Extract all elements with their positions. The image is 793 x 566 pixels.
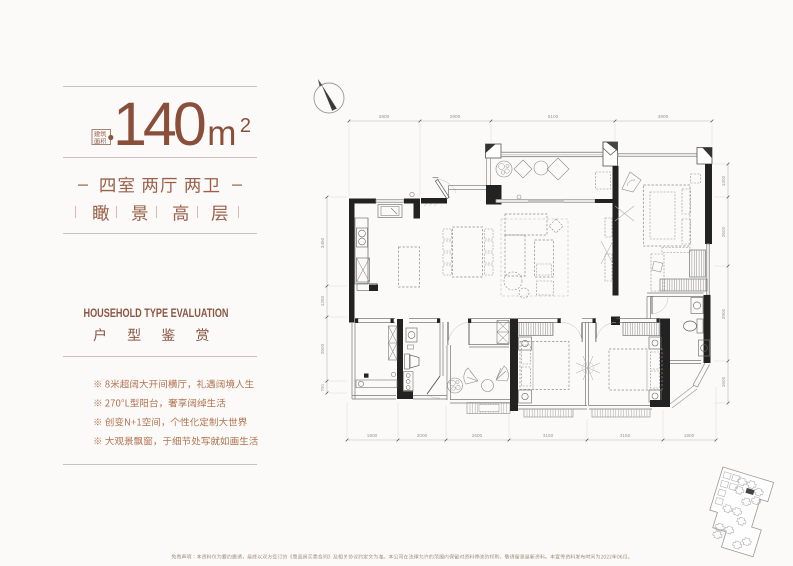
svg-text:1900: 1900 [684, 433, 695, 438]
svg-text:1300: 1300 [721, 175, 726, 186]
svg-text:2600: 2600 [320, 343, 325, 354]
svg-text:2000: 2000 [417, 433, 428, 438]
svg-text:3150: 3150 [620, 433, 631, 438]
svg-text:2800: 2800 [379, 114, 390, 119]
svg-text:3450: 3450 [320, 237, 325, 248]
svg-text:1600: 1600 [721, 376, 726, 387]
svg-text:2900: 2900 [721, 308, 726, 319]
svg-text:3150: 3150 [543, 433, 554, 438]
svg-text:1900: 1900 [367, 433, 378, 438]
svg-text:700: 700 [320, 384, 325, 392]
svg-text:1250: 1250 [320, 295, 325, 306]
svg-text:2900: 2900 [450, 114, 461, 119]
svg-text:5100: 5100 [548, 114, 559, 119]
svg-text:3900: 3900 [658, 114, 669, 119]
svg-text:2600: 2600 [721, 226, 726, 237]
svg-text:2600: 2600 [472, 433, 483, 438]
